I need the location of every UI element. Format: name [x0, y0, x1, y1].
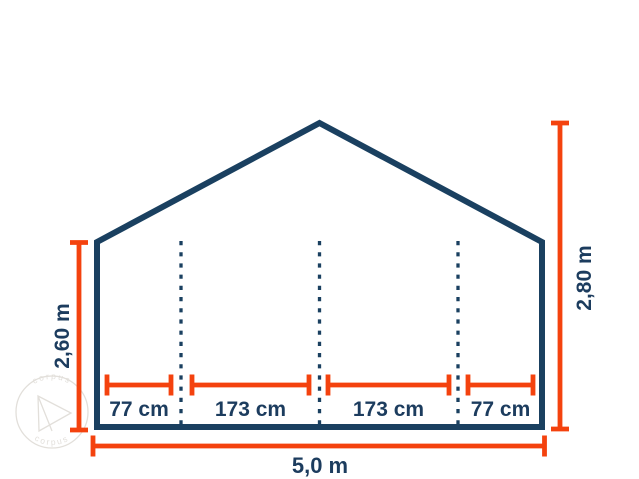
segment-dimension-1: [107, 375, 171, 396]
diagram-canvas: corpus corpus: [0, 0, 639, 479]
segment-dimension-2: [192, 375, 309, 396]
structure: [97, 123, 542, 427]
left-height-label: 2,60 m: [51, 303, 74, 368]
total-width-label: 5,0 m: [292, 453, 348, 478]
segment-label-2: 173 cm: [215, 398, 286, 421]
segment-label-1: 77 cm: [109, 398, 169, 421]
segment-dimension-4: [468, 375, 533, 396]
segment-label-3: 173 cm: [353, 398, 424, 421]
height-dimension-right: [551, 123, 569, 429]
segment-label-4: 77 cm: [471, 398, 531, 421]
watermark-text-top: corpus: [31, 371, 74, 386]
dimension-labels: 77 cm 173 cm 173 cm 77 cm 5,0 m 2,60 m 2…: [51, 245, 596, 478]
right-height-label: 2,80 m: [573, 245, 596, 310]
watermark-emblem: [38, 396, 71, 431]
tent-dimension-diagram: corpus corpus: [0, 0, 639, 479]
segment-dimension-3: [328, 375, 449, 396]
